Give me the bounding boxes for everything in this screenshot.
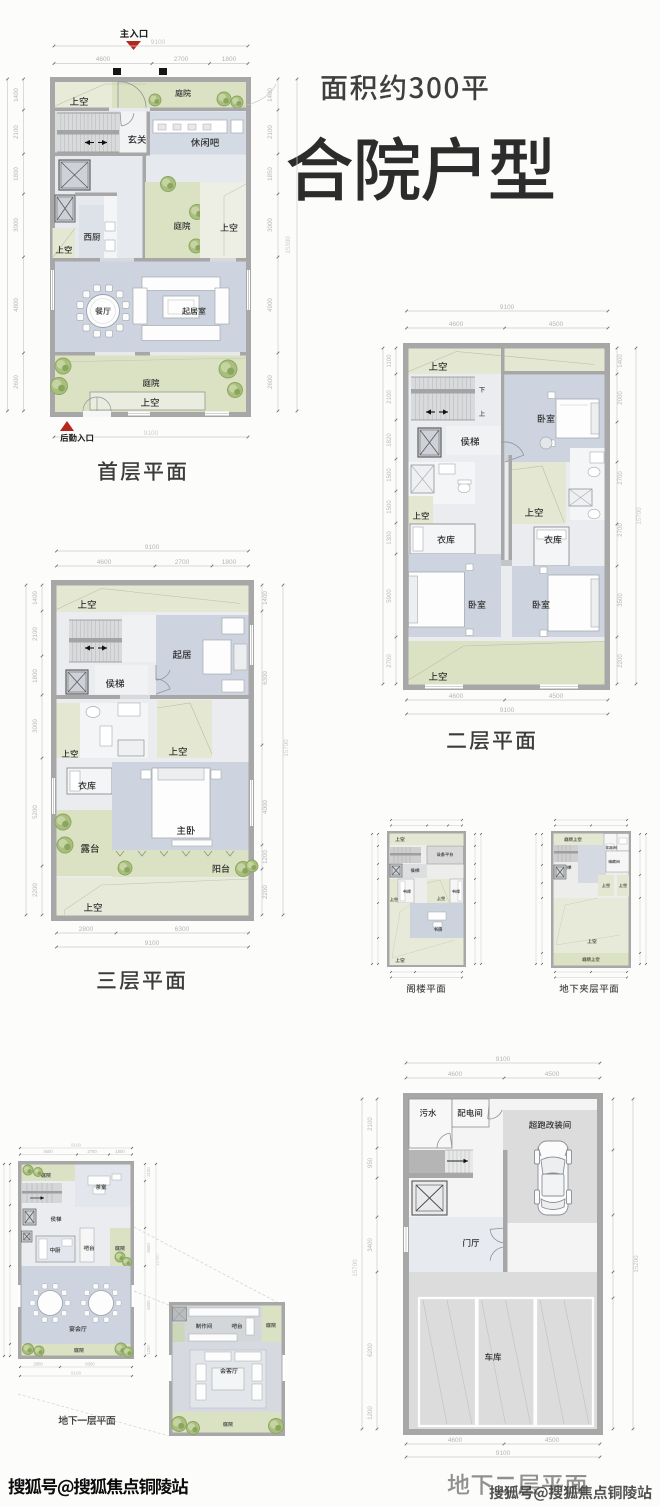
svg-text:1800: 1800 [222, 559, 237, 566]
svg-text:2800: 2800 [79, 926, 94, 933]
svg-text:4600: 4600 [43, 1149, 53, 1154]
svg-text:9100: 9100 [151, 39, 166, 46]
svg-text:2700: 2700 [87, 1149, 97, 1154]
svg-text:2700: 2700 [618, 471, 624, 485]
svg-text:9100: 9100 [71, 1371, 82, 1376]
svg-text:9100: 9100 [71, 1143, 82, 1148]
svg-text:2100: 2100 [13, 125, 20, 139]
svg-text:6200: 6200 [368, 1343, 374, 1357]
svg-text:1820: 1820 [387, 433, 393, 447]
svg-text:1500: 1500 [387, 500, 393, 514]
svg-text:4800: 4800 [13, 298, 20, 312]
svg-text:4600: 4600 [448, 1437, 463, 1444]
svg-text:1200: 1200 [368, 1406, 374, 1420]
svg-text:6300: 6300 [85, 1362, 95, 1367]
svg-text:15700: 15700 [155, 1254, 160, 1266]
svg-text:6200: 6200 [146, 1300, 151, 1310]
svg-text:2100: 2100 [146, 1167, 151, 1177]
svg-text:2200: 2200 [262, 885, 269, 899]
svg-text:9100: 9100 [500, 707, 515, 714]
svg-text:3000: 3000 [13, 218, 20, 232]
svg-text:1800: 1800 [115, 1149, 125, 1154]
svg-text:3500: 3500 [618, 593, 624, 607]
svg-text:3000: 3000 [32, 719, 39, 733]
svg-text:4600: 4600 [449, 321, 464, 328]
svg-text:2700: 2700 [387, 654, 393, 668]
svg-text:2100: 2100 [368, 1117, 374, 1131]
svg-text:4500: 4500 [545, 1437, 560, 1444]
svg-text:4600: 4600 [97, 559, 112, 566]
svg-text:2700: 2700 [618, 523, 624, 537]
svg-text:9100: 9100 [145, 940, 160, 947]
svg-text:1200: 1200 [146, 1345, 151, 1355]
svg-text:4900: 4900 [267, 298, 274, 312]
svg-text:2100: 2100 [267, 125, 274, 139]
svg-text:1400: 1400 [618, 354, 624, 368]
svg-text:9100: 9100 [496, 1450, 511, 1457]
svg-text:15200: 15200 [633, 1255, 640, 1273]
svg-text:15700: 15700 [352, 1259, 359, 1277]
svg-text:3000: 3000 [267, 218, 274, 232]
svg-text:4600: 4600 [448, 1071, 463, 1078]
svg-text:2100: 2100 [387, 390, 393, 404]
svg-text:5200: 5200 [32, 805, 39, 819]
svg-text:3400: 3400 [368, 1238, 374, 1252]
svg-text:1100: 1100 [387, 354, 393, 368]
svg-text:9100: 9100 [496, 1056, 511, 1063]
svg-text:15300: 15300 [285, 236, 292, 254]
svg-text:2000: 2000 [618, 391, 624, 405]
svg-text:1800: 1800 [32, 669, 39, 683]
svg-text:2800: 2800 [33, 1362, 43, 1367]
svg-text:5600: 5600 [146, 1243, 151, 1253]
svg-text:2100: 2100 [32, 627, 39, 641]
svg-text:1800: 1800 [222, 56, 237, 63]
svg-text:9100: 9100 [500, 304, 515, 311]
svg-text:4600: 4600 [96, 56, 111, 63]
svg-text:1200: 1200 [262, 850, 269, 864]
svg-text:5900: 5900 [387, 589, 393, 603]
svg-text:9100: 9100 [144, 430, 159, 437]
svg-text:4500: 4500 [549, 321, 564, 328]
svg-text:6300: 6300 [262, 671, 269, 685]
svg-text:2600: 2600 [267, 375, 274, 389]
svg-text:1400: 1400 [32, 591, 39, 605]
svg-text:2600: 2600 [13, 375, 20, 389]
svg-text:2200: 2200 [32, 883, 39, 897]
svg-text:15700: 15700 [636, 507, 643, 525]
svg-text:950: 950 [368, 1157, 374, 1168]
svg-text:15700: 15700 [283, 739, 290, 757]
svg-text:1400: 1400 [262, 591, 269, 605]
svg-text:4600: 4600 [449, 693, 464, 700]
svg-text:4500: 4500 [549, 693, 564, 700]
svg-text:2200: 2200 [618, 654, 624, 668]
svg-text:9100: 9100 [145, 544, 160, 551]
svg-text:2700: 2700 [175, 559, 190, 566]
svg-text:4000: 4000 [262, 800, 269, 814]
svg-text:4500: 4500 [545, 1071, 560, 1078]
svg-text:1400: 1400 [13, 88, 20, 102]
svg-text:6300: 6300 [175, 926, 190, 933]
svg-text:1300: 1300 [387, 531, 393, 545]
svg-text:1850: 1850 [267, 167, 274, 181]
svg-text:1500: 1500 [387, 468, 393, 482]
svg-text:1400: 1400 [267, 88, 274, 102]
svg-text:2700: 2700 [174, 56, 189, 63]
svg-text:1800: 1800 [13, 167, 20, 181]
